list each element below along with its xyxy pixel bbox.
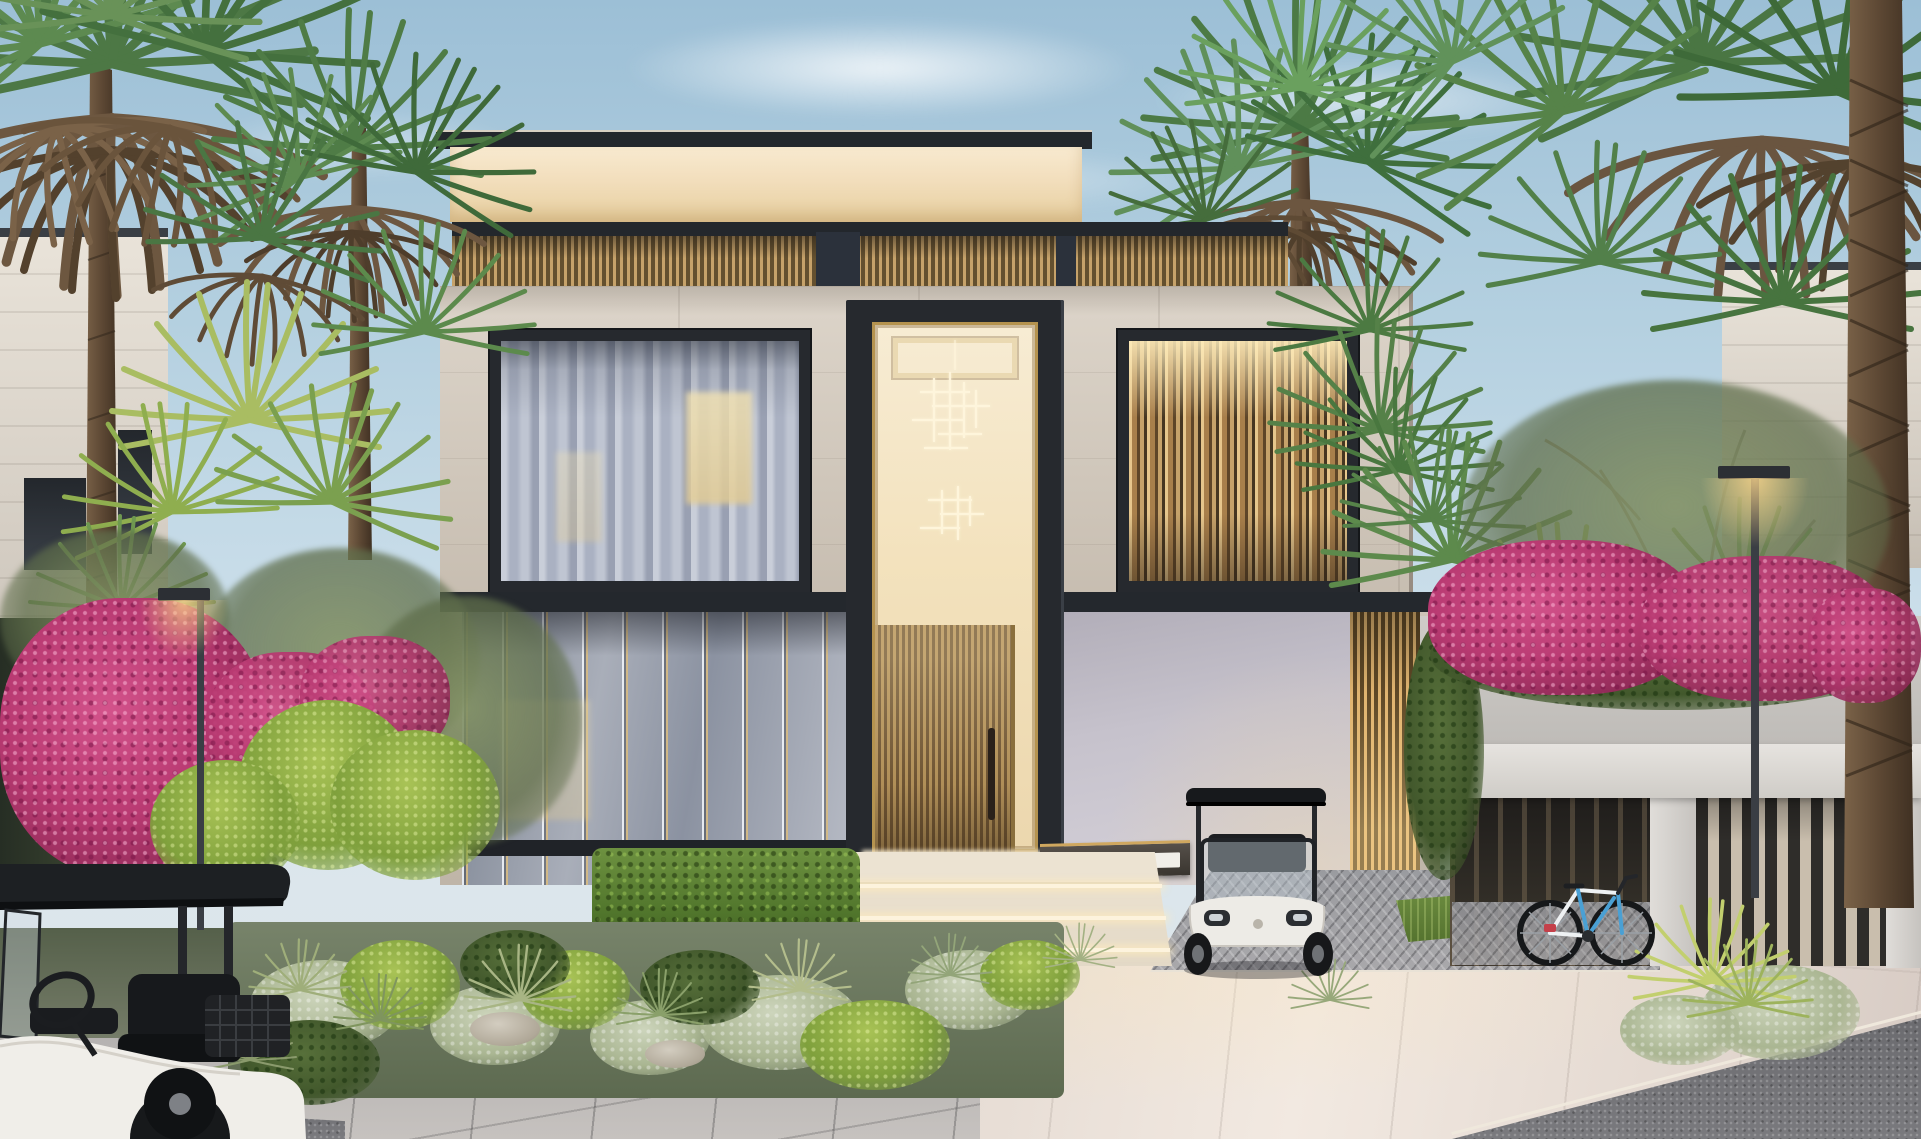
bicycle-parts <box>1520 876 1652 963</box>
bicycle <box>1500 838 1680 978</box>
golf-cart-front-parts <box>1184 788 1333 979</box>
golf-cart-side-parts <box>0 864 306 1139</box>
golf-cart-side <box>0 850 400 1139</box>
villa-dusk-rendering: Dusk front elevation of a modern two-sto… <box>0 0 1921 1139</box>
golf-cart-front <box>1160 770 1370 985</box>
